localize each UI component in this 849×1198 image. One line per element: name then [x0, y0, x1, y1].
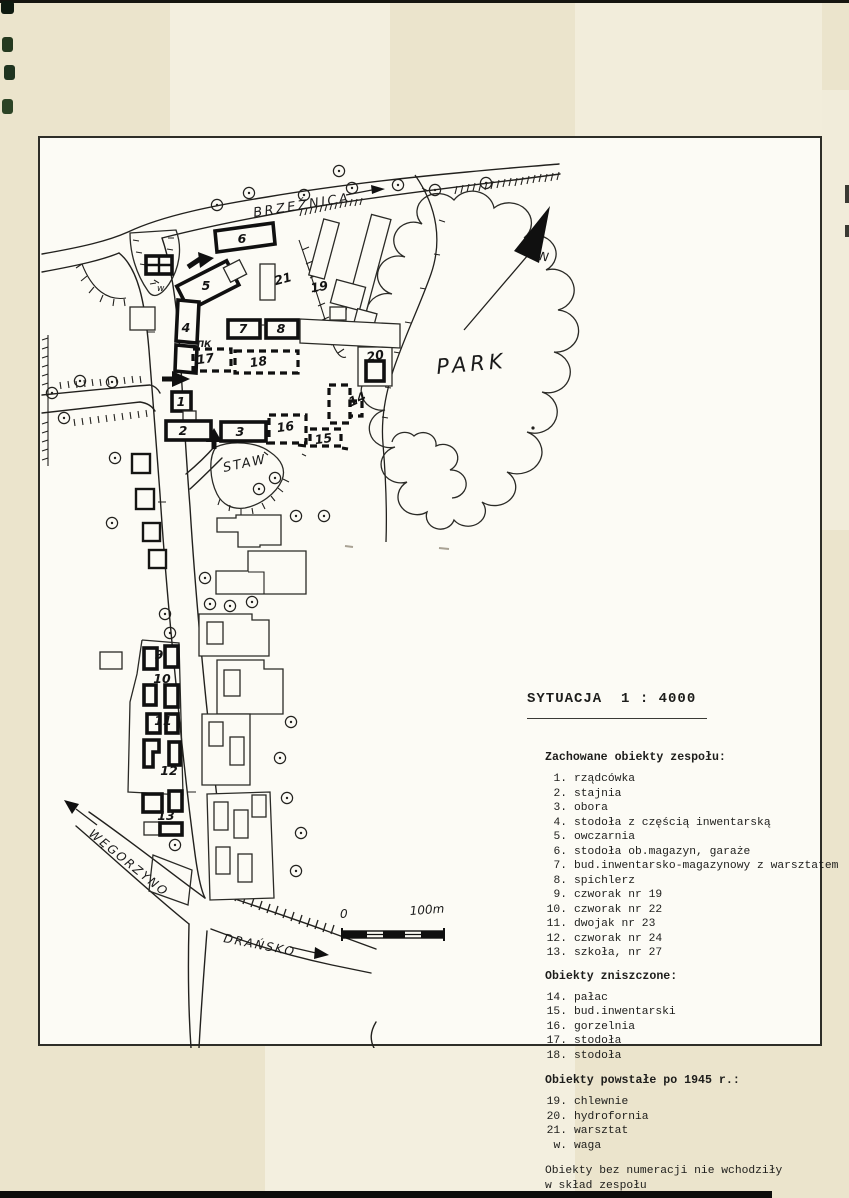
scale-start-label: 0 [340, 907, 348, 921]
page-title: SYTUACJA 1 : 4000 [527, 691, 849, 707]
legend-item: 12.czworak nr 24 [527, 932, 849, 947]
scan-light-band [575, 0, 822, 136]
scanned-archival-page: { "title": "SYTUACJA 1 : 4000", "legend"… [0, 0, 849, 1198]
building-14-palace [329, 385, 350, 423]
svg-text:12: 12 [160, 763, 177, 778]
svg-text:13: 13 [157, 808, 174, 823]
building-21 [260, 264, 275, 300]
svg-text:17: 17 [196, 350, 216, 367]
scan-mark [2, 37, 13, 52]
building-2 [166, 421, 211, 440]
pk-label: ПК [197, 340, 212, 350]
title-underline [527, 718, 707, 719]
north-arrow: N [464, 206, 550, 330]
legend-note: Obiekty bez numeracji nie wchodziły w sk… [545, 1164, 849, 1193]
legend-group-post1945: 19.chlewnie 20.hydrofornia 21.warsztat w… [527, 1095, 849, 1153]
scan-mark [2, 99, 13, 114]
scale-end-label: 100m [409, 902, 444, 918]
site-plan-sheet: PARK STAW w [38, 136, 822, 1046]
legend-item: 10.czworak nr 22 [527, 903, 849, 918]
legend-item: 5.owczarnia [527, 830, 849, 845]
svg-text:5: 5 [202, 278, 211, 293]
legend-item: 3.obora [527, 801, 849, 816]
legend-group-preserved: 1.rządcówka 2.stajnia 3.obora 4.stodoła … [527, 772, 849, 961]
north-label: N [538, 249, 549, 264]
legend-item: 4.stodoła z częścią inwentarską [527, 816, 849, 831]
scan-top-edge [0, 0, 849, 3]
legend-heading-preserved: Zachowane obiekty zespołu: [545, 751, 849, 764]
pond-label: STAW [222, 452, 269, 476]
legend-heading-destroyed: Obiekty zniszczone: [545, 970, 849, 983]
svg-text:3: 3 [236, 424, 245, 439]
legend-item: 1.rządcówka [527, 772, 849, 787]
building-19-short [309, 219, 339, 279]
legend-item: w.waga [527, 1139, 849, 1154]
village-buildings [100, 307, 306, 905]
svg-text:18: 18 [249, 353, 269, 370]
street-label-drawsko: DRAŃSKO [222, 930, 297, 959]
building-10 [144, 685, 156, 705]
legend-item: 11.dwojak nr 23 [527, 917, 849, 932]
svg-text:19: 19 [309, 278, 329, 296]
legend-heading-post1945: Obiekty powstałe po 1945 r.: [545, 1074, 849, 1087]
svg-text:1: 1 [177, 394, 186, 409]
legend-item: 15.bud.inwentarski [527, 1005, 849, 1020]
park-label: PARK [435, 349, 507, 379]
legend-item: 2.stajnia [527, 787, 849, 802]
svg-text:15: 15 [314, 430, 334, 447]
svg-text:8: 8 [277, 321, 286, 336]
legend-group-destroyed: 14.pałac 15.bud.inwentarski 16.gorzelnia… [527, 991, 849, 1064]
scan-light-band [170, 0, 390, 136]
legend: SYTUACJA 1 : 4000 Zachowane obiekty zesp… [527, 691, 849, 1193]
scan-smudge [345, 546, 449, 549]
legend-item: 7.bud.inwentarsko-magazynowy z warsztate… [527, 859, 849, 874]
legend-item: 13.szkoła, nr 27 [527, 946, 849, 961]
svg-text:11: 11 [154, 713, 171, 728]
scale-bar: 0 100m [340, 902, 445, 941]
scan-mark [845, 225, 849, 237]
legend-item: 17.stodoła [527, 1034, 849, 1049]
scan-mark [1, 1, 14, 14]
pond: STAW [211, 443, 289, 515]
roads [42, 164, 560, 1048]
svg-text:21: 21 [272, 269, 293, 288]
legend-item: 16.gorzelnia [527, 1020, 849, 1035]
svg-text:2: 2 [179, 423, 188, 438]
building-12 [144, 740, 159, 767]
legend-item: 9.czworak nr 19 [527, 888, 849, 903]
svg-text:20: 20 [365, 347, 385, 365]
svg-text:9: 9 [155, 647, 164, 662]
legend-item: 19.chlewnie [527, 1095, 849, 1110]
legend-item: 18.stodoła [527, 1049, 849, 1064]
svg-text:6: 6 [238, 231, 247, 246]
legend-item: 6.stodoła ob.magazyn, garaże [527, 845, 849, 860]
legend-item: 21.warsztat [527, 1124, 849, 1139]
svg-text:10: 10 [153, 671, 171, 686]
legend-item: 14.pałac [527, 991, 849, 1006]
waga-label: w [157, 284, 165, 294]
scan-light-band [822, 90, 849, 530]
legend-item: 8.spichlerz [527, 874, 849, 889]
scan-mark [4, 65, 15, 80]
svg-text:4: 4 [181, 320, 191, 335]
entrance-enclosure: w [130, 230, 180, 295]
svg-text:7: 7 [239, 321, 248, 336]
street-label-brzeznica: BRZEŹNICA [252, 190, 351, 221]
legend-item: 20.hydrofornia [527, 1110, 849, 1125]
scan-mark [845, 185, 849, 203]
svg-text:16: 16 [276, 418, 296, 435]
